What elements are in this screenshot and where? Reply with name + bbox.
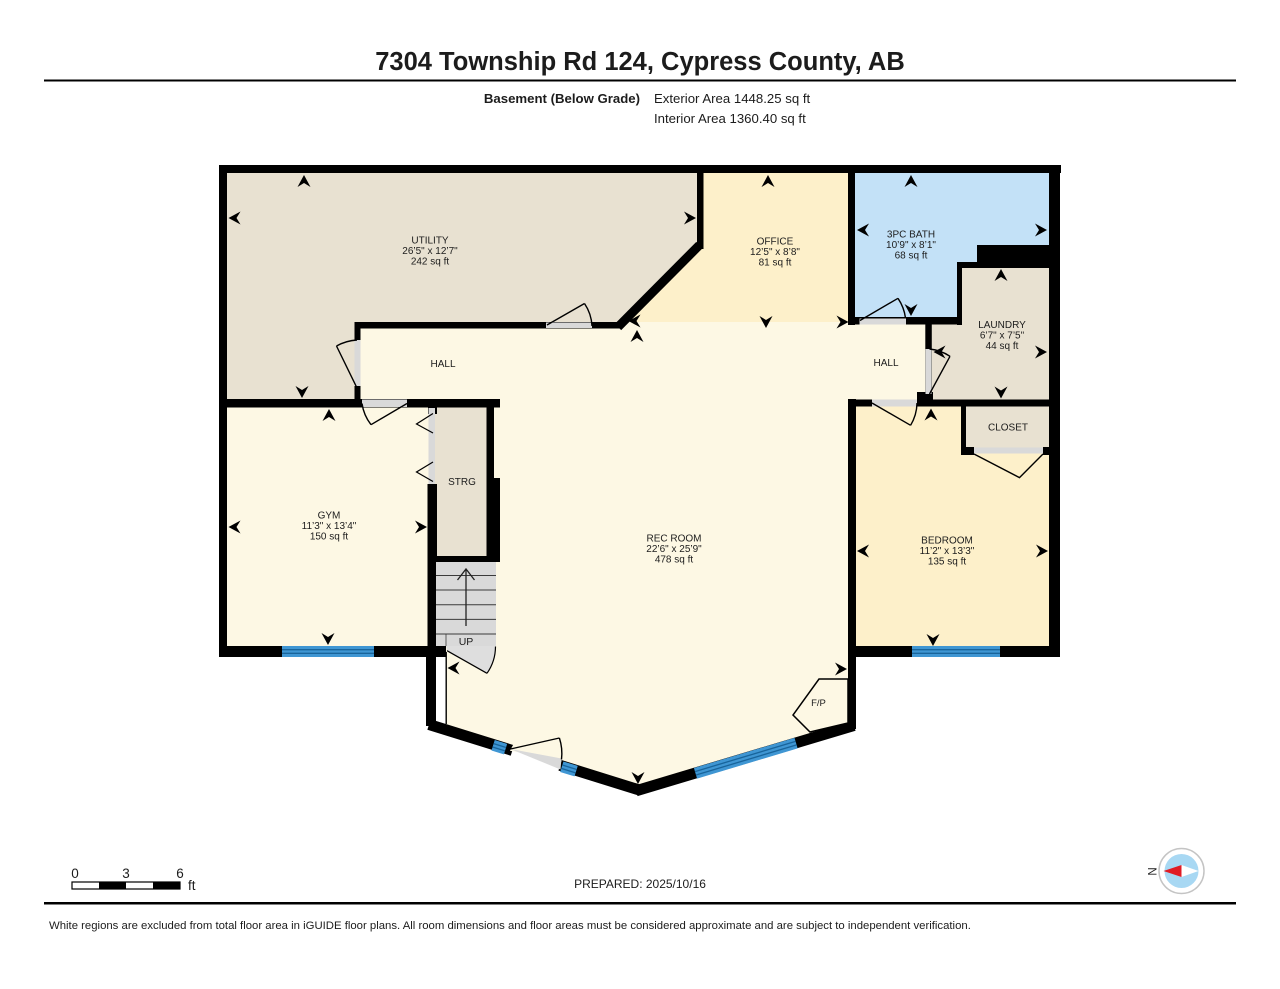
svg-text:ft: ft — [188, 878, 196, 893]
svg-text:135 sq ft: 135 sq ft — [928, 557, 967, 568]
svg-text:0: 0 — [71, 866, 79, 881]
svg-text:REC ROOM: REC ROOM — [647, 534, 702, 545]
svg-text:BEDROOM: BEDROOM — [921, 536, 973, 547]
svg-text:10’9" x 8’1": 10’9" x 8’1" — [886, 240, 936, 251]
svg-text:7304 Township Rd 124, Cypress: 7304 Township Rd 124, Cypress County, AB — [375, 48, 905, 76]
svg-text:HALL: HALL — [430, 359, 455, 370]
svg-text:LAUNDRY: LAUNDRY — [978, 320, 1026, 331]
svg-text:22’6" x 25’9": 22’6" x 25’9" — [646, 544, 702, 555]
svg-text:3: 3 — [122, 866, 130, 881]
svg-text:Basement (Below Grade): Basement (Below Grade) — [484, 91, 640, 106]
svg-text:UP: UP — [459, 636, 474, 648]
svg-text:PREPARED: 2025/10/16: PREPARED: 2025/10/16 — [574, 877, 706, 891]
svg-text:Exterior Area 1448.25 sq ft: Exterior Area 1448.25 sq ft — [654, 91, 810, 106]
svg-text:UTILITY: UTILITY — [411, 236, 449, 247]
svg-text:44 sq ft: 44 sq ft — [986, 341, 1019, 352]
svg-text:478 sq ft: 478 sq ft — [655, 555, 694, 566]
svg-text:HALL: HALL — [873, 358, 898, 369]
svg-text:242 sq ft: 242 sq ft — [411, 257, 450, 268]
svg-text:11’3" x 13’4": 11’3" x 13’4" — [302, 521, 357, 532]
svg-text:CLOSET: CLOSET — [988, 423, 1028, 434]
svg-text:GYM: GYM — [318, 511, 341, 522]
svg-text:STRG: STRG — [448, 477, 476, 488]
svg-text:26’5" x 12’7": 26’5" x 12’7" — [402, 246, 458, 257]
svg-text:3PC BATH: 3PC BATH — [887, 230, 935, 241]
svg-text:150 sq ft: 150 sq ft — [310, 532, 349, 543]
svg-text:6’7" x 7’5": 6’7" x 7’5" — [980, 331, 1025, 342]
svg-text:68 sq ft: 68 sq ft — [895, 251, 928, 262]
svg-text:F/P: F/P — [811, 698, 826, 709]
svg-text:N: N — [1148, 867, 1160, 875]
svg-text:Interior Area 1360.40 sq ft: Interior Area 1360.40 sq ft — [654, 111, 806, 126]
svg-text:OFFICE: OFFICE — [757, 237, 794, 248]
svg-text:81 sq ft: 81 sq ft — [759, 258, 792, 269]
svg-text:12’5" x 8’8": 12’5" x 8’8" — [750, 247, 800, 258]
svg-text:White regions are excluded fro: White regions are excluded from total fl… — [49, 920, 971, 932]
svg-text:6: 6 — [176, 866, 184, 881]
svg-text:11’2" x 13’3": 11’2" x 13’3" — [920, 546, 975, 557]
